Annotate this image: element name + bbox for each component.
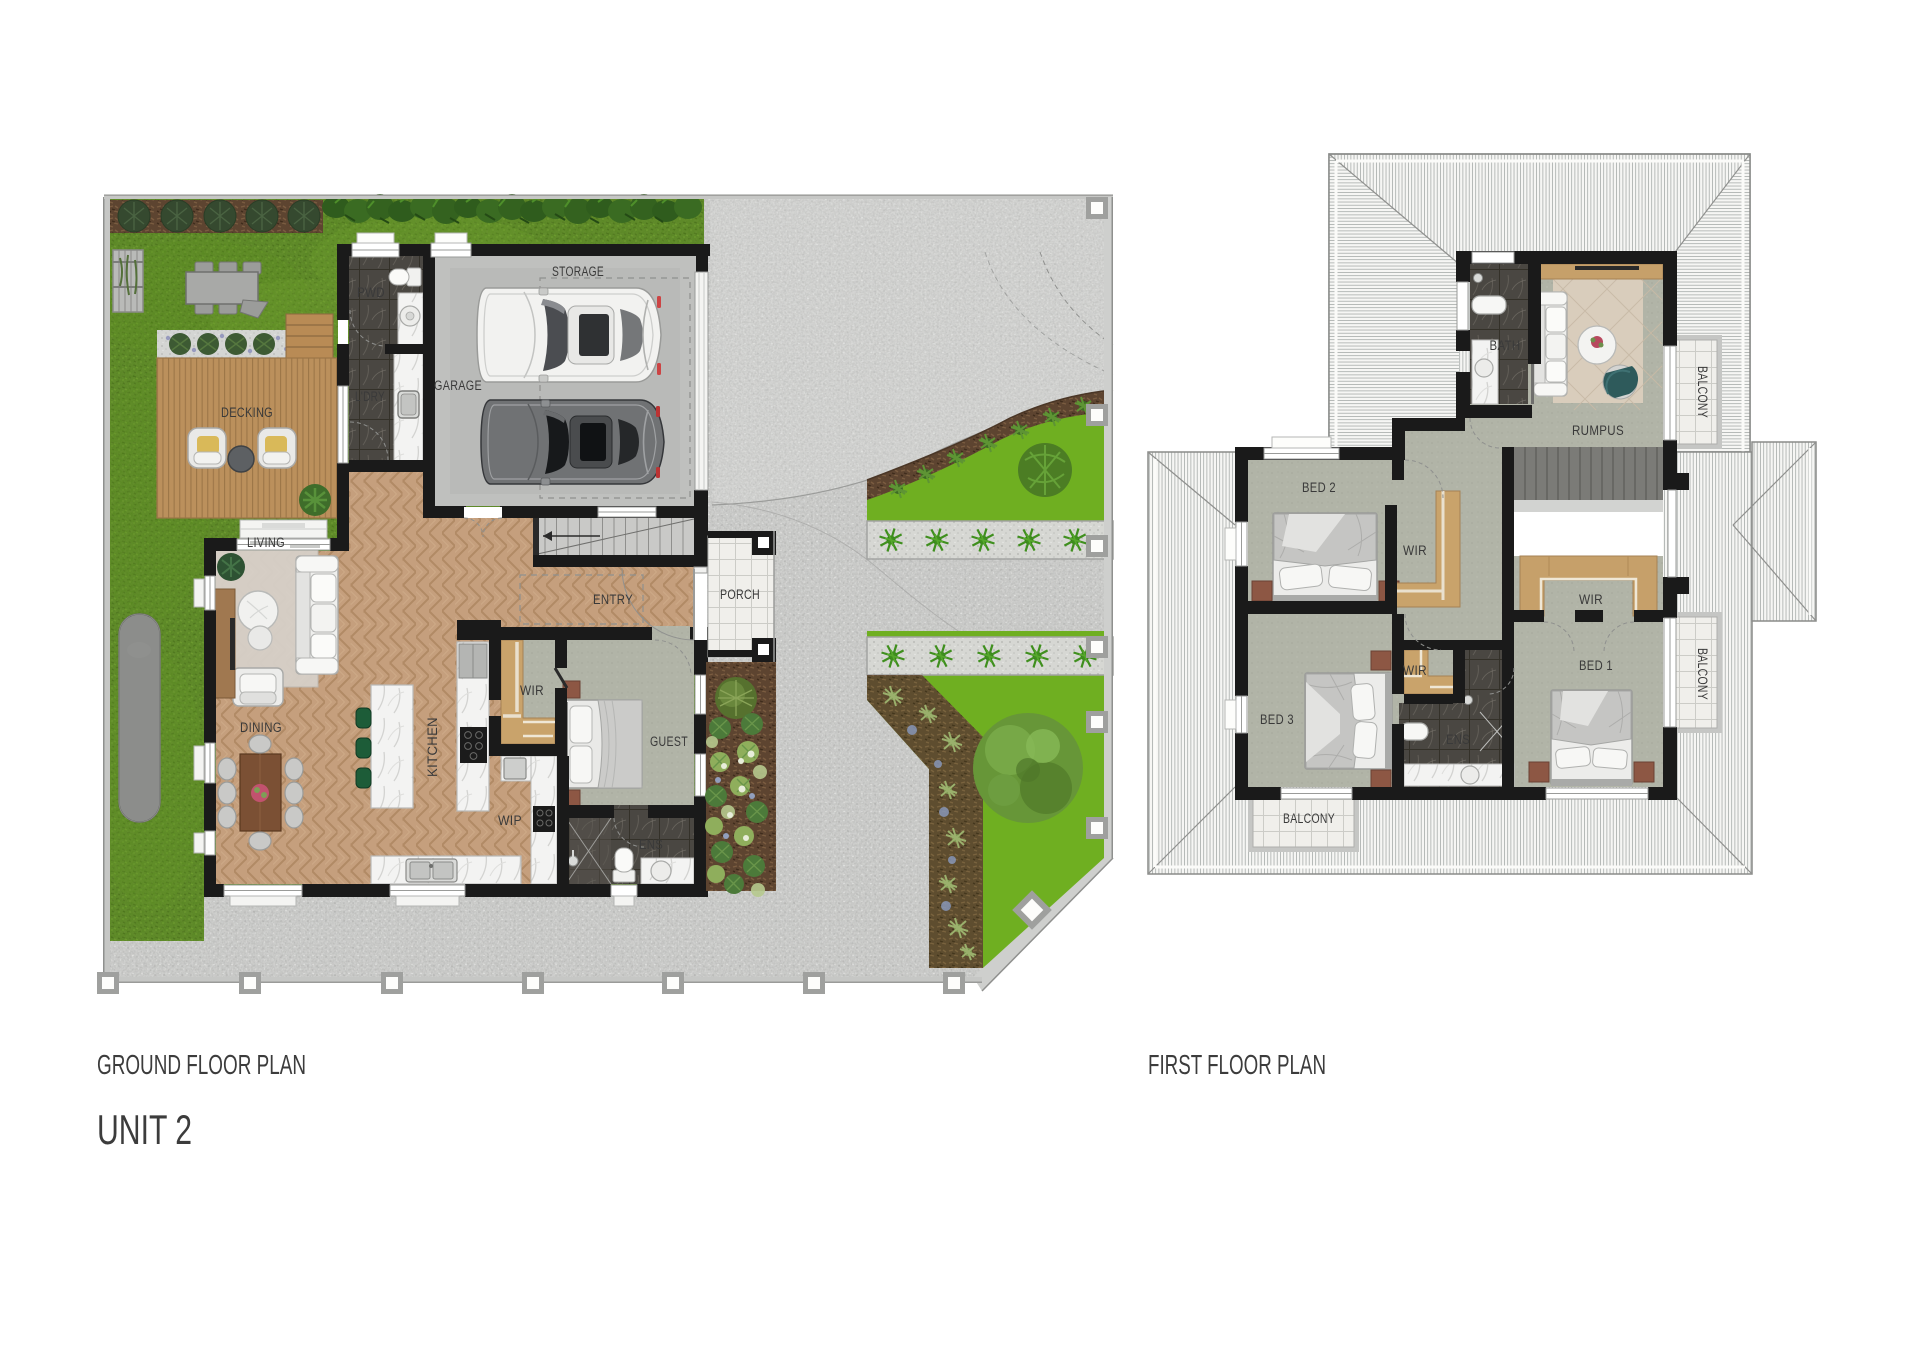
- svg-text:GROUND FLOOR PLAN: GROUND FLOOR PLAN: [97, 1049, 306, 1080]
- svg-text:BALCONY: BALCONY: [1283, 811, 1335, 826]
- svg-text:WIR: WIR: [520, 683, 544, 698]
- svg-text:BALCONY: BALCONY: [1695, 366, 1710, 418]
- svg-text:BATH: BATH: [1490, 338, 1521, 353]
- svg-text:BED 2: BED 2: [1302, 480, 1336, 495]
- svg-text:WIR: WIR: [1579, 592, 1603, 607]
- svg-text:WIR: WIR: [1403, 543, 1427, 558]
- svg-text:L'DRY: L'DRY: [355, 389, 385, 404]
- svg-text:GUEST: GUEST: [650, 734, 688, 749]
- svg-text:PWD: PWD: [357, 285, 385, 300]
- svg-text:BALCONY: BALCONY: [1695, 648, 1710, 700]
- svg-text:WIR: WIR: [1403, 663, 1427, 678]
- svg-text:ENS: ENS: [639, 837, 663, 852]
- svg-text:ENS: ENS: [1446, 732, 1470, 747]
- svg-text:BED 1: BED 1: [1579, 658, 1613, 673]
- svg-text:GARAGE: GARAGE: [434, 378, 482, 393]
- svg-text:ENTRY: ENTRY: [593, 592, 633, 607]
- svg-text:STORAGE: STORAGE: [552, 264, 604, 279]
- svg-text:UNIT 2: UNIT 2: [97, 1106, 192, 1153]
- svg-text:BED 3: BED 3: [1260, 712, 1294, 727]
- svg-text:DINING: DINING: [240, 720, 282, 735]
- svg-text:WIP: WIP: [498, 813, 522, 828]
- svg-text:RUMPUS: RUMPUS: [1572, 423, 1624, 438]
- svg-text:PORCH: PORCH: [720, 587, 760, 602]
- svg-text:LIVING: LIVING: [247, 535, 285, 550]
- svg-text:DECKING: DECKING: [221, 405, 273, 420]
- svg-text:KITCHEN: KITCHEN: [425, 717, 440, 777]
- svg-text:FIRST FLOOR PLAN: FIRST FLOOR PLAN: [1148, 1049, 1326, 1080]
